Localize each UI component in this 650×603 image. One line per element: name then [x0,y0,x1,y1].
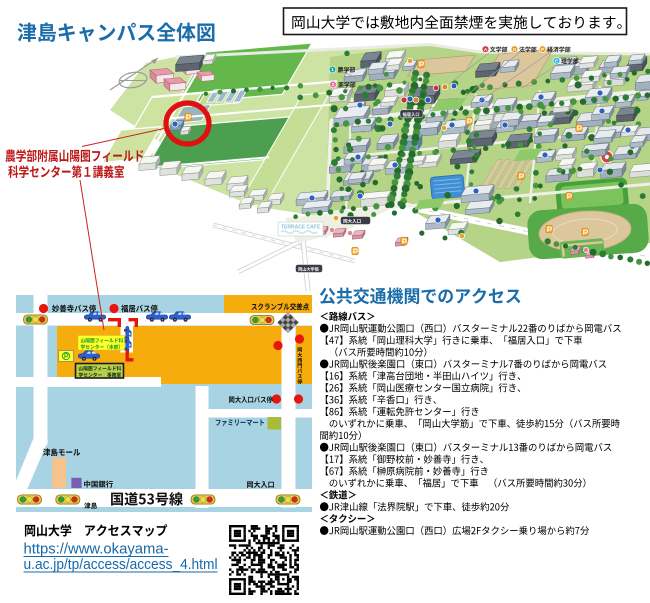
svg-text:P: P [541,47,544,52]
svg-text:TERRACE CAFE: TERRACE CAFE [281,225,321,231]
svg-text:https://www.okayama-: https://www.okayama- [24,541,169,558]
svg-text:2: 2 [332,82,335,87]
svg-text:1: 1 [331,67,334,72]
svg-text:G: G [513,47,517,52]
svg-text:E: E [555,58,558,63]
svg-text:u.ac.jp/tp/access/access_4.htm: u.ac.jp/tp/access/access_4.html [24,556,218,573]
